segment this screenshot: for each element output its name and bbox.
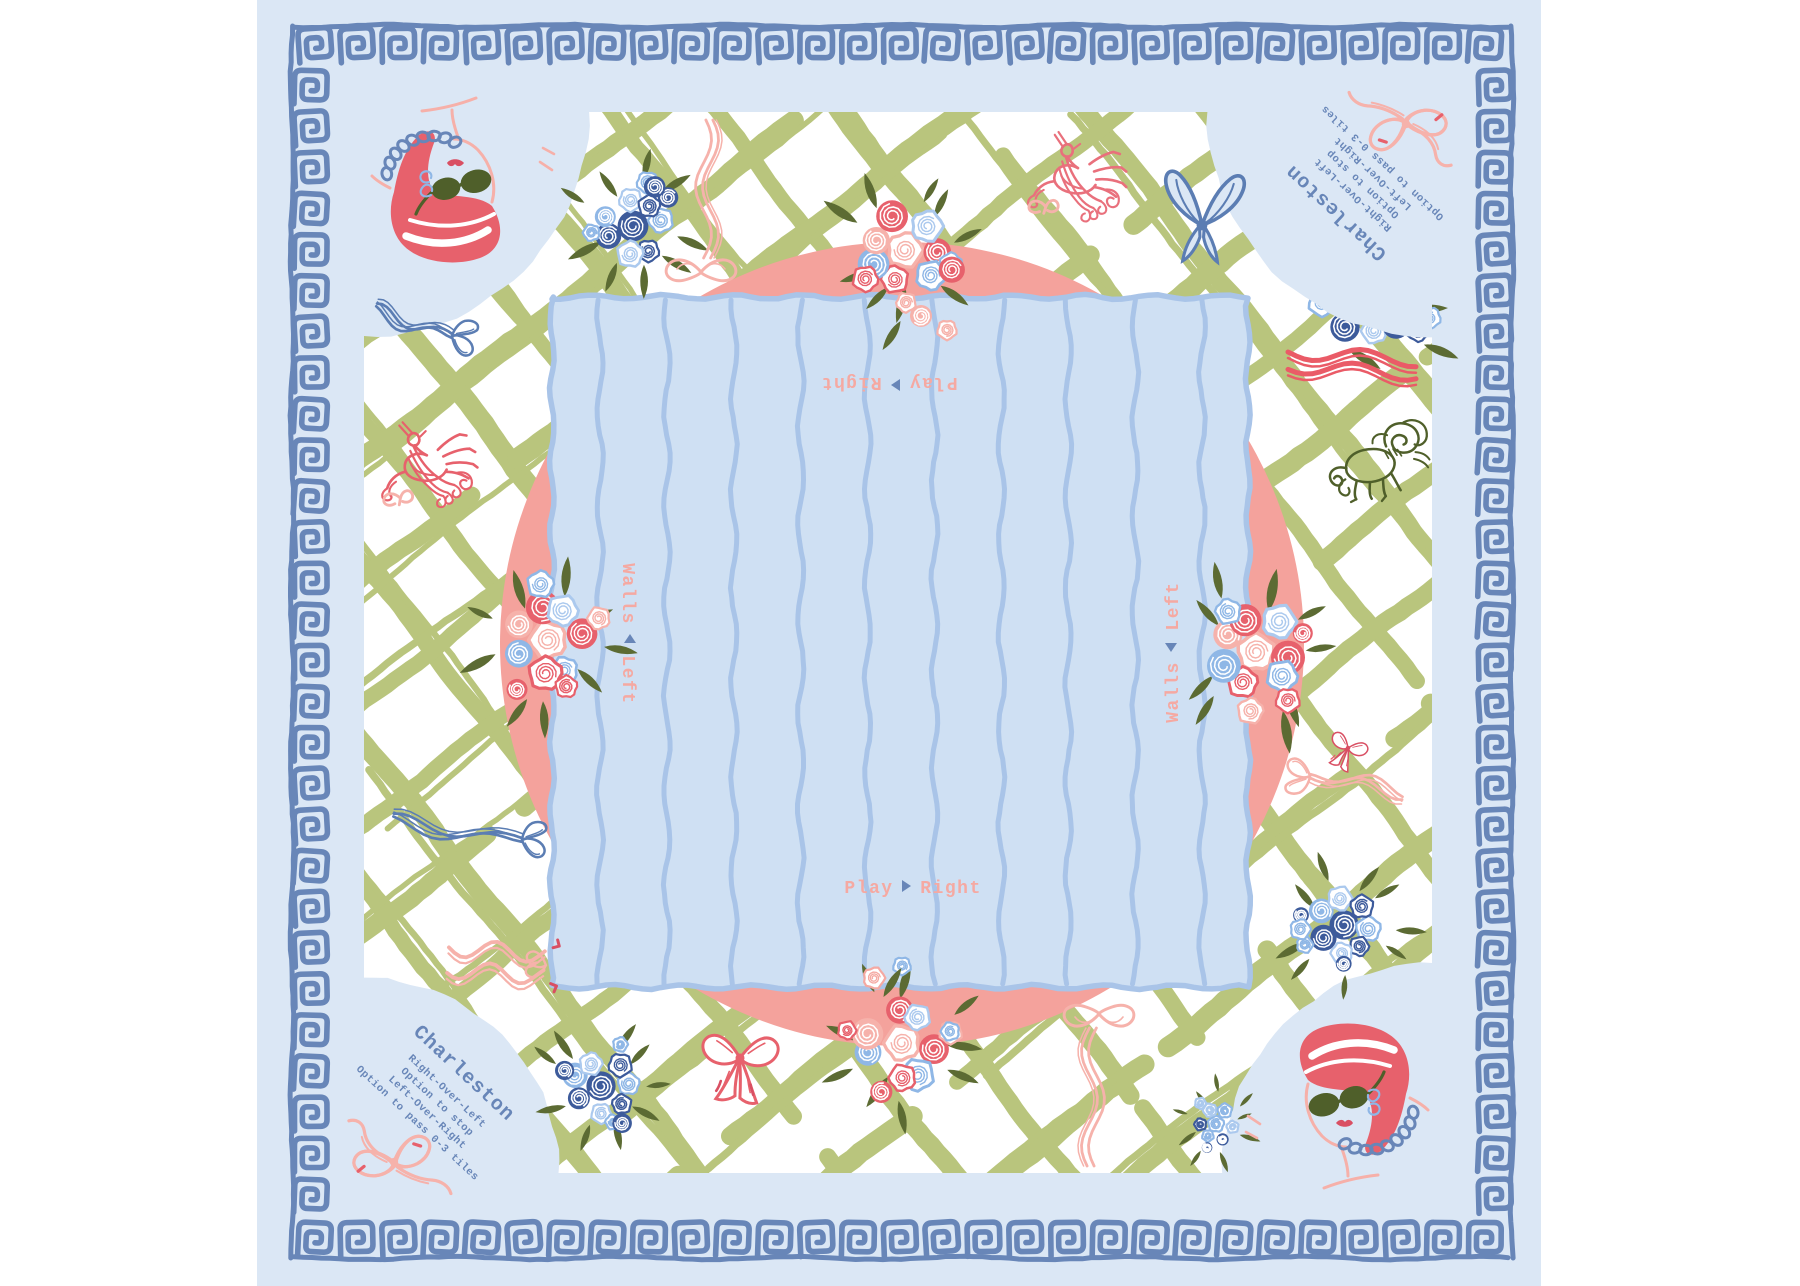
svg-text:Left: Left [1164,581,1184,630]
svg-text:Left: Left [617,655,637,704]
svg-text:Walls: Walls [617,563,637,625]
svg-text:Walls: Walls [1164,661,1184,723]
svg-text:Right: Right [920,879,982,899]
svg-text:Play: Play [844,879,893,899]
svg-text:Play: Play [908,372,957,392]
svg-text:Right: Right [820,372,882,392]
